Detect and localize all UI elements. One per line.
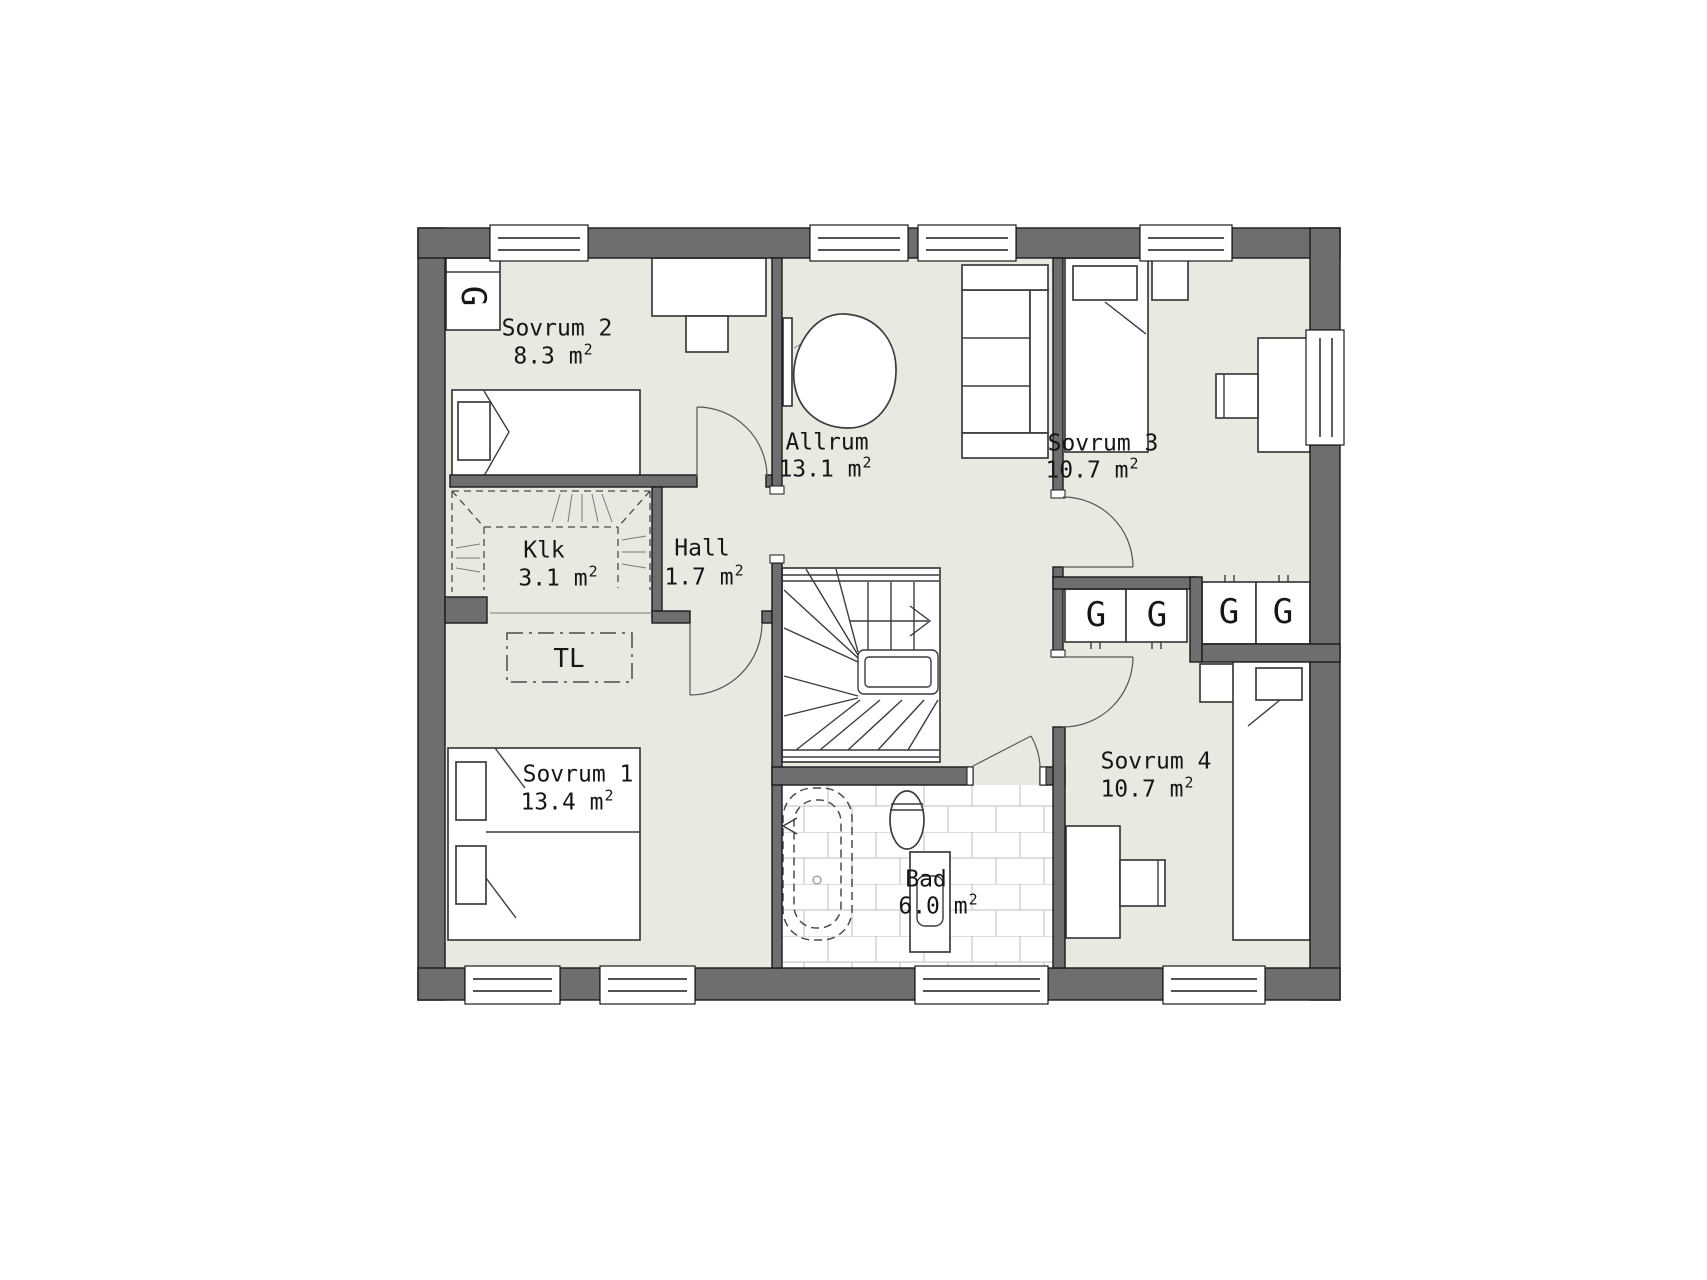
window-icon	[810, 225, 908, 261]
wardrobe-label: G	[1086, 598, 1106, 632]
room-area-allrum: 13.1 m2	[778, 459, 871, 482]
room-label-sovrum4: Sovrum 4	[1101, 751, 1212, 774]
window-icon	[1140, 225, 1232, 261]
room-label-sovrum3: Sovrum 3	[1048, 433, 1159, 456]
staircase	[782, 568, 940, 762]
room-area-bad: 6.0 m2	[898, 896, 977, 919]
floor-plan-page: Sovrum 2 8.3 m2 Allrum 13.1 m2 Sovrum 3 …	[0, 0, 1707, 1280]
wardrobe-label: G	[1273, 595, 1293, 629]
nightstand-icon	[1152, 260, 1188, 300]
room-area-klk: 3.1 m2	[518, 568, 597, 591]
nightstand-icon	[1200, 664, 1236, 702]
single-bed-icon	[1065, 258, 1148, 452]
room-label-allrum: Allrum	[785, 432, 868, 455]
window-icon	[490, 225, 588, 261]
window-icon	[1163, 966, 1265, 1004]
wardrobe-label: G	[1147, 598, 1167, 632]
room-label-bad: Bad	[905, 869, 947, 892]
window-icon	[465, 966, 560, 1004]
room-area-hall: 1.7 m2	[664, 567, 743, 590]
room-label-hall: Hall	[674, 538, 729, 561]
rug-icon	[794, 314, 896, 428]
wardrobe-label: G	[1219, 595, 1239, 629]
room-label-klk: Klk	[523, 540, 565, 563]
floor-plan-drawing	[0, 0, 1707, 1280]
single-bed-icon	[1233, 658, 1310, 940]
toilet-icon	[890, 791, 924, 849]
attic-hatch-label: TL	[553, 646, 584, 672]
room-label-sovrum2: Sovrum 2	[502, 318, 613, 341]
room-area-sovrum4: 10.7 m2	[1100, 779, 1193, 802]
single-bed-icon	[452, 390, 640, 477]
room-area-sovrum3: 10.7 m2	[1045, 460, 1138, 483]
room-label-sovrum1: Sovrum 1	[523, 764, 634, 787]
window-icon	[915, 966, 1048, 1004]
sofa-icon	[962, 265, 1048, 458]
wardrobe-label: G	[456, 286, 490, 306]
window-icon	[1306, 330, 1344, 445]
window-icon	[918, 225, 1016, 261]
room-area-sovrum1: 13.4 m2	[520, 792, 613, 815]
window-icon	[600, 966, 695, 1004]
room-area-sovrum2: 8.3 m2	[513, 346, 592, 369]
